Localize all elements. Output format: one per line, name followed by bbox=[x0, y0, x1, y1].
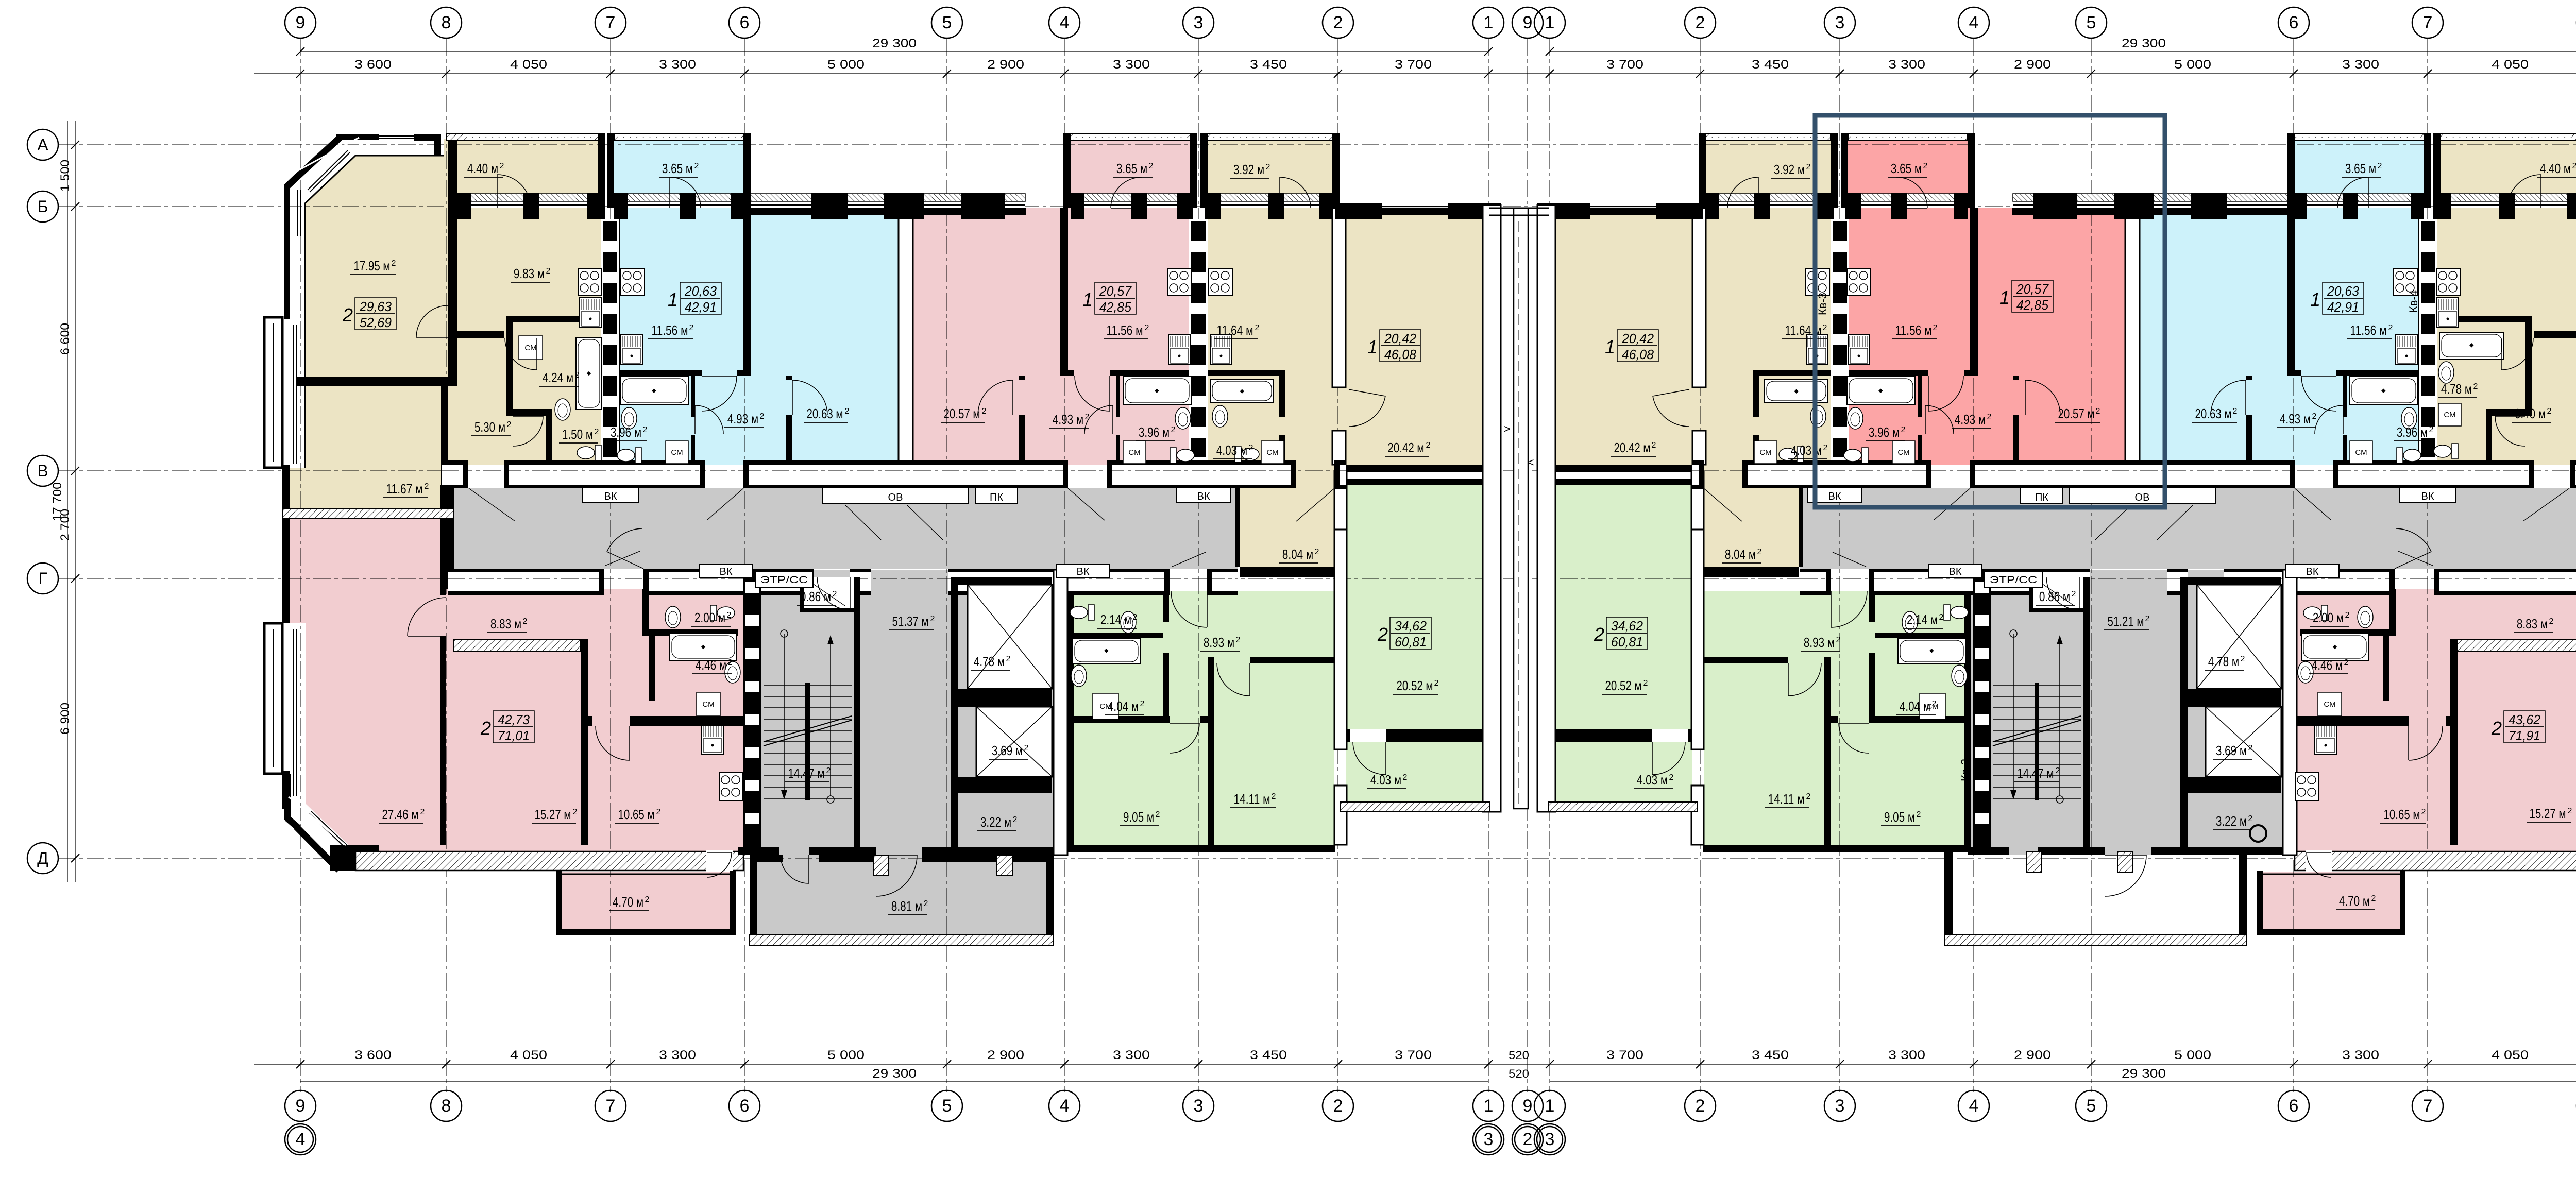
svg-text:42,91: 42,91 bbox=[685, 299, 717, 315]
svg-text:2: 2 bbox=[575, 371, 580, 380]
svg-text:9: 9 bbox=[1523, 1096, 1533, 1116]
svg-text:11.67 м: 11.67 м bbox=[386, 481, 423, 497]
svg-text:7: 7 bbox=[606, 13, 616, 32]
svg-text:3: 3 bbox=[1194, 13, 1204, 32]
svg-text:1: 1 bbox=[2310, 289, 2320, 310]
svg-text:3: 3 bbox=[1545, 1130, 1555, 1149]
svg-text:520: 520 bbox=[1509, 1049, 1529, 1062]
svg-text:8.04 м: 8.04 м bbox=[1725, 547, 1756, 562]
svg-text:2: 2 bbox=[2145, 615, 2150, 623]
svg-text:2: 2 bbox=[1140, 700, 1145, 708]
svg-text:3.22 м: 3.22 м bbox=[980, 814, 1011, 830]
svg-text:20.63 м: 20.63 м bbox=[2195, 406, 2232, 421]
svg-text:3.65 м: 3.65 м bbox=[662, 161, 693, 176]
svg-text:46,08: 46,08 bbox=[1384, 347, 1417, 362]
svg-text:2: 2 bbox=[727, 611, 732, 620]
svg-text:20.57 м: 20.57 м bbox=[2058, 406, 2095, 421]
svg-text:2: 2 bbox=[2345, 611, 2350, 620]
svg-text:8.83 м: 8.83 м bbox=[2517, 616, 2548, 632]
svg-text:3.92 м: 3.92 м bbox=[1233, 162, 1264, 177]
svg-text:2.00 м: 2.00 м bbox=[2313, 610, 2344, 625]
svg-text:2: 2 bbox=[1917, 810, 1921, 819]
svg-text:5: 5 bbox=[942, 1096, 952, 1116]
svg-text:1: 1 bbox=[1082, 289, 1093, 310]
svg-text:2: 2 bbox=[1594, 624, 1604, 645]
svg-text:11.56 м: 11.56 м bbox=[2350, 322, 2387, 338]
svg-text:7: 7 bbox=[2423, 1096, 2433, 1116]
svg-text:2: 2 bbox=[689, 323, 694, 332]
svg-text:9.83 м: 9.83 м bbox=[514, 266, 545, 281]
svg-text:1.50 м: 1.50 м bbox=[562, 427, 593, 442]
svg-text:14.11 м: 14.11 м bbox=[1768, 791, 1805, 807]
svg-text:1: 1 bbox=[668, 289, 678, 310]
svg-text:2: 2 bbox=[982, 407, 987, 416]
svg-text:3 450: 3 450 bbox=[1250, 1048, 1287, 1062]
svg-text:2: 2 bbox=[1823, 323, 1827, 332]
svg-text:1: 1 bbox=[1545, 13, 1555, 32]
svg-text:>: > bbox=[1504, 422, 1511, 435]
svg-text:2: 2 bbox=[826, 766, 831, 775]
svg-text:1: 1 bbox=[1605, 336, 1615, 357]
svg-text:17.95 м: 17.95 м bbox=[354, 258, 391, 274]
svg-text:0.86 м: 0.86 м bbox=[800, 589, 831, 604]
svg-text:8.93 м: 8.93 м bbox=[1804, 635, 1835, 650]
svg-text:ЭТР/СС: ЭТР/СС bbox=[1990, 575, 2037, 586]
svg-text:3 450: 3 450 bbox=[1752, 1048, 1789, 1062]
svg-text:СМ: СМ bbox=[524, 344, 536, 352]
svg-text:2: 2 bbox=[1932, 700, 1937, 708]
svg-text:3 600: 3 600 bbox=[354, 1048, 392, 1062]
svg-text:14.47 м: 14.47 м bbox=[788, 765, 825, 781]
svg-text:2.00 м: 2.00 м bbox=[694, 610, 725, 625]
svg-text:7: 7 bbox=[606, 1096, 616, 1116]
svg-text:2: 2 bbox=[1823, 444, 1828, 452]
svg-text:20,57: 20,57 bbox=[2016, 281, 2049, 297]
svg-text:2: 2 bbox=[1024, 744, 1029, 753]
svg-text:2: 2 bbox=[342, 304, 353, 326]
svg-text:2: 2 bbox=[573, 808, 578, 816]
svg-text:3 300: 3 300 bbox=[1888, 1048, 1925, 1062]
svg-text:4.78 м: 4.78 м bbox=[2208, 654, 2239, 669]
svg-text:9: 9 bbox=[296, 13, 306, 32]
svg-text:2: 2 bbox=[2371, 894, 2376, 903]
svg-text:3.22 м: 3.22 м bbox=[2216, 813, 2247, 829]
svg-text:20.63 м: 20.63 м bbox=[807, 406, 843, 421]
svg-text:4 050: 4 050 bbox=[2492, 1048, 2529, 1062]
svg-text:ВК: ВК bbox=[2421, 491, 2434, 502]
svg-text:2: 2 bbox=[1171, 425, 1176, 434]
svg-text:5: 5 bbox=[942, 13, 952, 32]
svg-text:5 000: 5 000 bbox=[2174, 58, 2211, 72]
svg-text:ВК: ВК bbox=[1949, 566, 1962, 577]
svg-text:520: 520 bbox=[1509, 1067, 1529, 1080]
svg-text:2: 2 bbox=[1272, 792, 1276, 801]
svg-text:Кв-2: Кв-2 bbox=[1959, 759, 1972, 781]
svg-text:2: 2 bbox=[480, 718, 491, 739]
svg-text:2: 2 bbox=[2378, 162, 2382, 170]
svg-text:4.03 м: 4.03 м bbox=[1637, 772, 1668, 788]
svg-text:2: 2 bbox=[2241, 655, 2245, 663]
svg-text:ЭТР/СС: ЭТР/СС bbox=[760, 575, 808, 586]
svg-text:2: 2 bbox=[1939, 613, 1944, 622]
svg-text:Б: Б bbox=[38, 197, 48, 216]
svg-text:34,62: 34,62 bbox=[1395, 618, 1427, 634]
svg-text:46,08: 46,08 bbox=[1622, 347, 1654, 362]
svg-text:2: 2 bbox=[1923, 162, 1928, 170]
svg-text:20,63: 20,63 bbox=[2327, 283, 2359, 299]
svg-text:4.93 м: 4.93 м bbox=[2280, 411, 2311, 427]
svg-text:2: 2 bbox=[1266, 163, 1270, 172]
svg-text:4.24 м: 4.24 м bbox=[543, 370, 573, 385]
svg-text:8: 8 bbox=[442, 1096, 451, 1116]
svg-text:5 000: 5 000 bbox=[827, 1048, 865, 1062]
svg-text:3 450: 3 450 bbox=[1250, 58, 1287, 72]
svg-text:2: 2 bbox=[924, 899, 928, 908]
svg-text:9.05 м: 9.05 м bbox=[1884, 809, 1915, 825]
svg-text:3 700: 3 700 bbox=[1395, 1048, 1432, 1062]
svg-text:11.56 м: 11.56 м bbox=[1107, 322, 1143, 338]
svg-text:2: 2 bbox=[2072, 590, 2076, 599]
svg-text:51.21 м: 51.21 м bbox=[2108, 613, 2144, 629]
svg-text:2: 2 bbox=[1333, 1096, 1343, 1116]
svg-text:3.65 м: 3.65 м bbox=[1891, 161, 1922, 176]
svg-text:2: 2 bbox=[645, 895, 650, 904]
svg-text:3.65 м: 3.65 м bbox=[2345, 161, 2376, 176]
svg-text:5: 5 bbox=[2087, 13, 2096, 32]
svg-text:3.69 м: 3.69 м bbox=[992, 743, 1023, 758]
svg-text:4 050: 4 050 bbox=[2492, 58, 2529, 72]
svg-text:3.96 м: 3.96 м bbox=[1869, 424, 1900, 440]
svg-text:2: 2 bbox=[1085, 413, 1090, 421]
svg-text:71,01: 71,01 bbox=[498, 728, 530, 743]
svg-text:3.92 м: 3.92 м bbox=[1774, 162, 1805, 177]
svg-text:3 300: 3 300 bbox=[659, 1048, 696, 1062]
svg-text:4: 4 bbox=[296, 1130, 306, 1149]
svg-text:10.65 м: 10.65 м bbox=[618, 807, 655, 822]
svg-text:2: 2 bbox=[425, 482, 429, 491]
svg-text:2: 2 bbox=[2473, 382, 2478, 391]
svg-text:60,81: 60,81 bbox=[1395, 634, 1427, 650]
svg-text:2: 2 bbox=[523, 617, 528, 626]
svg-text:2: 2 bbox=[2344, 658, 2349, 667]
svg-text:4.03 м: 4.03 м bbox=[1216, 442, 1247, 458]
svg-text:2: 2 bbox=[1377, 624, 1388, 645]
svg-text:6: 6 bbox=[2289, 1096, 2299, 1116]
svg-text:ВК: ВК bbox=[604, 491, 617, 502]
svg-text:6.40 м: 6.40 м bbox=[2515, 406, 2546, 421]
svg-text:4: 4 bbox=[1060, 1096, 1070, 1116]
svg-text:Д: Д bbox=[37, 849, 48, 867]
svg-text:5 000: 5 000 bbox=[2174, 1048, 2211, 1062]
svg-text:2: 2 bbox=[2429, 425, 2434, 434]
svg-text:В: В bbox=[37, 462, 48, 480]
svg-text:42,91: 42,91 bbox=[2327, 299, 2359, 315]
svg-text:8: 8 bbox=[442, 13, 451, 32]
svg-text:2: 2 bbox=[1315, 548, 1319, 556]
svg-text:8.93 м: 8.93 м bbox=[1204, 635, 1234, 650]
svg-text:42,85: 42,85 bbox=[1099, 299, 1132, 315]
svg-text:4: 4 bbox=[1060, 13, 1070, 32]
svg-text:4: 4 bbox=[1969, 1096, 1979, 1116]
svg-text:4.78 м: 4.78 м bbox=[974, 654, 1005, 669]
svg-text:7: 7 bbox=[2423, 13, 2433, 32]
svg-text:4.40 м: 4.40 м bbox=[2540, 161, 2571, 176]
svg-text:3 300: 3 300 bbox=[1888, 58, 1925, 72]
svg-text:2: 2 bbox=[1255, 323, 1260, 332]
svg-text:СМ: СМ bbox=[702, 700, 714, 709]
svg-text:А: А bbox=[37, 135, 48, 154]
svg-text:СМ: СМ bbox=[2324, 700, 2335, 709]
svg-text:11.56 м: 11.56 м bbox=[1895, 322, 1932, 338]
svg-text:2: 2 bbox=[546, 267, 551, 276]
svg-text:5 000: 5 000 bbox=[827, 58, 865, 72]
svg-text:20.57 м: 20.57 м bbox=[944, 406, 980, 421]
svg-text:3.69 м: 3.69 м bbox=[2216, 743, 2247, 758]
svg-text:4.78 м: 4.78 м bbox=[2441, 381, 2472, 397]
svg-text:4.93 м: 4.93 м bbox=[1053, 412, 1083, 427]
svg-text:СМ: СМ bbox=[1759, 448, 1771, 457]
svg-text:<: < bbox=[1528, 456, 1534, 469]
svg-text:20,42: 20,42 bbox=[1621, 331, 1654, 346]
svg-text:2: 2 bbox=[1133, 613, 1138, 622]
svg-text:2: 2 bbox=[1426, 441, 1431, 450]
svg-text:29 300: 29 300 bbox=[2122, 1067, 2166, 1081]
svg-text:ПК: ПК bbox=[990, 492, 1003, 503]
svg-text:9: 9 bbox=[1523, 13, 1533, 32]
svg-text:2: 2 bbox=[1652, 441, 1656, 450]
svg-text:ВК: ВК bbox=[1197, 491, 1210, 502]
svg-text:2: 2 bbox=[2388, 323, 2393, 332]
svg-text:2: 2 bbox=[1145, 323, 1149, 332]
svg-text:11.64 м: 11.64 м bbox=[1217, 322, 1253, 338]
svg-text:Кв-3: Кв-3 bbox=[1816, 293, 1829, 315]
svg-text:71,91: 71,91 bbox=[2509, 728, 2540, 743]
svg-text:20.52 м: 20.52 м bbox=[1397, 678, 1433, 693]
svg-text:2: 2 bbox=[595, 428, 599, 436]
svg-text:5: 5 bbox=[2087, 1096, 2096, 1116]
svg-text:6: 6 bbox=[740, 13, 750, 32]
svg-text:2: 2 bbox=[1403, 773, 1408, 782]
svg-text:2: 2 bbox=[507, 420, 512, 429]
svg-text:42,85: 42,85 bbox=[2016, 297, 2049, 313]
svg-text:2: 2 bbox=[1249, 444, 1253, 452]
svg-text:60,81: 60,81 bbox=[1611, 634, 1643, 650]
svg-text:2: 2 bbox=[2549, 617, 2554, 626]
svg-text:1: 1 bbox=[1545, 1096, 1555, 1116]
svg-text:3.96 м: 3.96 м bbox=[611, 424, 641, 440]
svg-text:СМ: СМ bbox=[1897, 448, 1909, 457]
svg-text:3.65 м: 3.65 м bbox=[1116, 161, 1147, 176]
svg-text:1 500: 1 500 bbox=[58, 160, 72, 192]
svg-text:8.04 м: 8.04 м bbox=[1282, 547, 1313, 562]
svg-text:2: 2 bbox=[1987, 413, 1992, 421]
svg-text:3.96 м: 3.96 м bbox=[1139, 424, 1170, 440]
svg-text:11.56 м: 11.56 м bbox=[652, 322, 688, 338]
svg-text:17 700: 17 700 bbox=[50, 482, 64, 521]
svg-text:2: 2 bbox=[2421, 808, 2426, 816]
svg-text:2: 2 bbox=[1643, 679, 1648, 688]
svg-text:ОВ: ОВ bbox=[888, 492, 903, 503]
svg-text:2: 2 bbox=[1696, 1096, 1705, 1116]
svg-text:2: 2 bbox=[2056, 766, 2060, 775]
svg-text:14.47 м: 14.47 м bbox=[2018, 765, 2054, 781]
svg-text:3 450: 3 450 bbox=[1752, 58, 1789, 72]
svg-text:52,69: 52,69 bbox=[360, 315, 392, 330]
svg-text:29 300: 29 300 bbox=[2122, 37, 2166, 50]
svg-text:ВК: ВК bbox=[1828, 491, 1841, 502]
svg-text:2: 2 bbox=[2491, 718, 2502, 739]
svg-text:4.04 м: 4.04 м bbox=[1108, 698, 1139, 714]
svg-text:3 700: 3 700 bbox=[1606, 1048, 1643, 1062]
svg-text:3: 3 bbox=[1835, 1096, 1845, 1116]
svg-text:2: 2 bbox=[694, 162, 699, 170]
svg-text:20,57: 20,57 bbox=[1099, 283, 1132, 299]
svg-text:4 050: 4 050 bbox=[510, 1048, 547, 1062]
svg-text:ВК: ВК bbox=[2306, 566, 2319, 577]
svg-text:29 300: 29 300 bbox=[872, 1067, 917, 1081]
svg-text:2: 2 bbox=[1013, 815, 1018, 824]
svg-text:2: 2 bbox=[2572, 162, 2576, 170]
svg-text:2: 2 bbox=[2248, 814, 2253, 823]
svg-text:3 700: 3 700 bbox=[1395, 58, 1432, 72]
svg-text:2: 2 bbox=[1933, 323, 1938, 332]
svg-text:4.70 м: 4.70 м bbox=[613, 894, 643, 910]
svg-text:2: 2 bbox=[1836, 636, 1841, 644]
svg-text:3 300: 3 300 bbox=[659, 58, 696, 72]
svg-text:СМ: СМ bbox=[1128, 448, 1140, 457]
svg-text:2: 2 bbox=[1006, 655, 1011, 663]
svg-text:2: 2 bbox=[2312, 412, 2317, 421]
svg-text:15.27 м: 15.27 м bbox=[535, 807, 571, 822]
svg-text:27.46 м: 27.46 м bbox=[382, 807, 419, 822]
svg-text:2 900: 2 900 bbox=[2014, 1048, 2051, 1062]
svg-text:20.42 м: 20.42 м bbox=[1614, 440, 1651, 455]
svg-text:2: 2 bbox=[1523, 1130, 1533, 1149]
svg-text:2: 2 bbox=[1696, 13, 1705, 32]
svg-text:29 300: 29 300 bbox=[872, 37, 917, 50]
svg-text:СМ: СМ bbox=[2444, 411, 2455, 419]
svg-text:2 900: 2 900 bbox=[2014, 58, 2051, 72]
svg-text:20.52 м: 20.52 м bbox=[1605, 678, 1642, 693]
svg-text:Г: Г bbox=[38, 569, 47, 588]
svg-text:2: 2 bbox=[656, 808, 661, 816]
svg-text:3 300: 3 300 bbox=[2342, 1048, 2379, 1062]
svg-text:2 900: 2 900 bbox=[987, 58, 1024, 72]
svg-text:2: 2 bbox=[2096, 407, 2100, 416]
svg-text:34,62: 34,62 bbox=[1611, 618, 1643, 634]
svg-text:СМ: СМ bbox=[1266, 448, 1278, 457]
svg-text:6 600: 6 600 bbox=[58, 323, 72, 355]
svg-text:2: 2 bbox=[728, 658, 733, 667]
svg-text:2 900: 2 900 bbox=[987, 1048, 1024, 1062]
svg-text:СМ: СМ bbox=[2355, 448, 2367, 457]
svg-text:ВК: ВК bbox=[720, 566, 733, 577]
svg-text:9.05 м: 9.05 м bbox=[1123, 809, 1154, 825]
svg-text:2.14 м: 2.14 м bbox=[1100, 612, 1131, 627]
svg-text:3 700: 3 700 bbox=[1606, 58, 1643, 72]
svg-text:4.46 м: 4.46 м bbox=[696, 657, 726, 673]
svg-text:3 300: 3 300 bbox=[2342, 58, 2379, 72]
svg-text:8.81 м: 8.81 м bbox=[891, 898, 922, 914]
svg-text:14.11 м: 14.11 м bbox=[1234, 791, 1270, 807]
svg-text:20.42 м: 20.42 м bbox=[1388, 440, 1425, 455]
svg-text:2: 2 bbox=[760, 412, 765, 421]
svg-text:20,63: 20,63 bbox=[684, 283, 717, 299]
svg-text:3 600: 3 600 bbox=[354, 58, 392, 72]
svg-text:4.93 м: 4.93 м bbox=[1955, 412, 1986, 427]
svg-text:2: 2 bbox=[643, 425, 648, 434]
svg-text:43,62: 43,62 bbox=[2509, 712, 2541, 727]
svg-text:2: 2 bbox=[2568, 807, 2572, 815]
svg-text:51.37 м: 51.37 м bbox=[892, 613, 929, 629]
svg-text:20,42: 20,42 bbox=[1384, 331, 1416, 346]
svg-text:2: 2 bbox=[420, 808, 425, 816]
svg-text:5.30 м: 5.30 м bbox=[474, 419, 505, 435]
svg-text:2: 2 bbox=[1149, 162, 1154, 170]
svg-text:3 300: 3 300 bbox=[1113, 1048, 1150, 1062]
svg-text:42,73: 42,73 bbox=[498, 712, 530, 727]
svg-text:6 900: 6 900 bbox=[58, 703, 72, 735]
svg-text:0.86 м: 0.86 м bbox=[2039, 589, 2070, 604]
svg-text:Кв-4: Кв-4 bbox=[2407, 290, 2420, 313]
svg-text:2: 2 bbox=[2233, 407, 2238, 416]
svg-text:2: 2 bbox=[1333, 13, 1343, 32]
svg-text:4.46 м: 4.46 м bbox=[2312, 657, 2343, 673]
svg-text:2: 2 bbox=[845, 407, 850, 416]
svg-text:3 300: 3 300 bbox=[1113, 58, 1150, 72]
svg-text:3.96 м: 3.96 м bbox=[2397, 424, 2428, 440]
svg-text:4.40 м: 4.40 м bbox=[467, 161, 498, 176]
svg-text:2: 2 bbox=[1806, 792, 1811, 801]
svg-text:6: 6 bbox=[2289, 13, 2299, 32]
svg-text:2: 2 bbox=[2547, 407, 2552, 416]
svg-text:4: 4 bbox=[1969, 13, 1979, 32]
svg-text:1: 1 bbox=[1999, 287, 2010, 308]
svg-text:4.93 м: 4.93 м bbox=[727, 411, 758, 427]
svg-text:4.04 м: 4.04 м bbox=[1900, 698, 1930, 714]
svg-text:4.03 м: 4.03 м bbox=[1370, 772, 1401, 788]
svg-text:29,63: 29,63 bbox=[359, 299, 392, 314]
svg-text:2: 2 bbox=[1757, 548, 1762, 556]
svg-text:ВК: ВК bbox=[1077, 566, 1090, 577]
svg-text:СМ: СМ bbox=[671, 448, 683, 457]
svg-text:1: 1 bbox=[1484, 1096, 1494, 1116]
svg-text:2: 2 bbox=[1236, 636, 1241, 644]
svg-text:4.70 м: 4.70 м bbox=[2339, 893, 2370, 909]
svg-text:2: 2 bbox=[500, 162, 504, 170]
svg-text:2: 2 bbox=[930, 615, 935, 623]
svg-text:2: 2 bbox=[1669, 773, 1674, 782]
svg-text:2: 2 bbox=[833, 590, 837, 599]
svg-text:1: 1 bbox=[1484, 13, 1494, 32]
svg-text:4 050: 4 050 bbox=[510, 58, 547, 72]
svg-text:2: 2 bbox=[1806, 163, 1811, 172]
svg-text:1: 1 bbox=[1367, 336, 1378, 357]
svg-text:2: 2 bbox=[1156, 810, 1160, 819]
svg-text:2: 2 bbox=[1434, 679, 1439, 688]
svg-text:6: 6 bbox=[740, 1096, 750, 1116]
svg-text:ОВ: ОВ bbox=[2135, 492, 2150, 503]
svg-text:2: 2 bbox=[2248, 744, 2253, 753]
svg-text:2.14 м: 2.14 м bbox=[1907, 612, 1938, 627]
svg-text:2: 2 bbox=[392, 259, 396, 268]
svg-text:3: 3 bbox=[1194, 1096, 1204, 1116]
svg-text:ПК: ПК bbox=[2035, 492, 2048, 503]
svg-text:3: 3 bbox=[1484, 1130, 1494, 1149]
svg-text:9: 9 bbox=[296, 1096, 306, 1116]
svg-text:15.27 м: 15.27 м bbox=[2530, 806, 2566, 821]
svg-text:3: 3 bbox=[1835, 13, 1845, 32]
